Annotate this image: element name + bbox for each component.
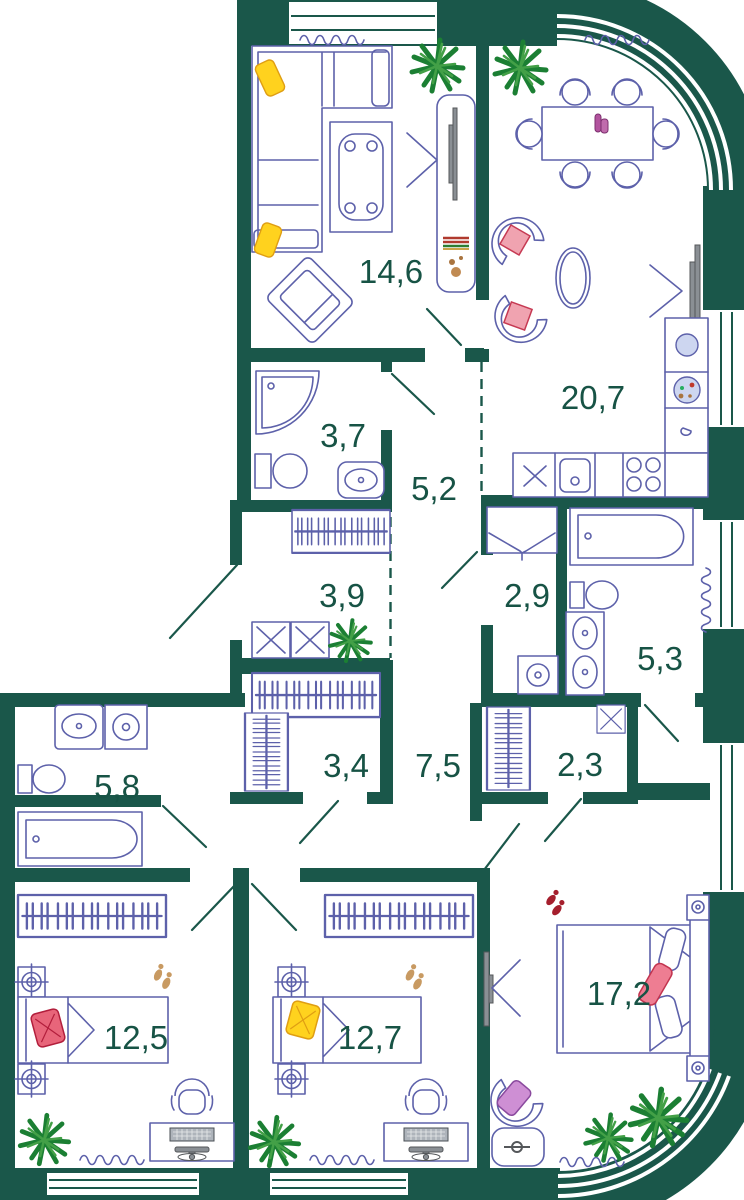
plant — [20, 1115, 68, 1163]
room-label-walkin: 3,4 — [323, 747, 369, 784]
room-label-living: 14,6 — [359, 253, 423, 290]
pillow — [500, 225, 530, 255]
armchair — [265, 255, 354, 344]
pouf — [492, 1128, 544, 1166]
door-laundry — [442, 552, 477, 588]
plant — [330, 620, 371, 661]
slippers — [402, 963, 429, 991]
plant — [412, 40, 463, 91]
washing-machine — [518, 656, 558, 694]
nightstand — [15, 964, 48, 1000]
room-label-bathroom: 5,3 — [637, 640, 683, 677]
slippers — [542, 889, 570, 917]
bathtub — [570, 508, 693, 565]
nightstand — [687, 1056, 709, 1081]
tv-cabinet — [437, 95, 475, 292]
room-label-corridor: 7,5 — [415, 747, 461, 784]
nightstand — [275, 964, 308, 1000]
living-room-furniture — [252, 36, 475, 345]
storage-box — [597, 705, 625, 733]
door-entrance — [170, 565, 237, 638]
wardrobe-rack — [487, 707, 530, 790]
slippers — [151, 963, 177, 990]
side-table — [556, 248, 590, 308]
bathtub — [18, 812, 142, 866]
wardrobe-rack — [245, 713, 288, 791]
desk-chair — [405, 1079, 446, 1114]
shoe-box — [252, 622, 290, 658]
wardrobe — [252, 673, 380, 717]
toilet — [570, 581, 618, 609]
rug-squiggle — [80, 1156, 144, 1165]
room-label-kitchen: 20,7 — [561, 379, 625, 416]
wardrobe — [18, 895, 166, 937]
tv-wall — [484, 952, 520, 1026]
room-label-bedroom1: 12,5 — [104, 1019, 168, 1056]
coffee-table — [330, 122, 392, 232]
room-label-laundry: 2,9 — [504, 577, 550, 614]
towel-rail — [702, 568, 711, 632]
door-bedroom-2 — [252, 884, 296, 930]
laundry-bin — [487, 507, 557, 560]
tv-arrow — [407, 133, 437, 187]
pillow — [504, 302, 532, 330]
toilet — [255, 454, 307, 488]
door-bedroom-1 — [192, 884, 236, 930]
door-bathroom — [645, 705, 678, 741]
wardrobe — [325, 895, 473, 937]
dining-table — [516, 79, 679, 188]
plant — [250, 1117, 298, 1165]
vanity-double-sink — [566, 612, 604, 695]
coat-rack — [292, 510, 390, 553]
sink — [338, 462, 384, 498]
room-label-bedroom2: 12,7 — [338, 1019, 402, 1056]
door-shower-room — [392, 374, 434, 414]
door-living-room — [427, 309, 461, 345]
desk — [384, 1123, 468, 1161]
plant — [586, 1115, 632, 1161]
sink — [55, 705, 103, 749]
shower — [256, 371, 319, 434]
room-label-hallway: 5,2 — [411, 470, 457, 507]
door-master-bedroom — [484, 824, 519, 870]
floor-plan: 14,6 20,7 3,7 5,2 3,9 2,9 5,3 7,5 3,4 2,… — [0, 0, 744, 1200]
rug-squiggle — [310, 1156, 374, 1165]
toilet — [18, 765, 65, 793]
desk-chair — [171, 1079, 212, 1114]
nightstand — [275, 1061, 308, 1097]
door-walk-in-closet — [300, 801, 338, 843]
room-label-entry: 3,9 — [319, 577, 365, 614]
plant — [495, 42, 546, 93]
washing-machine — [105, 705, 147, 749]
floor-plan-drawing: 14,6 20,7 3,7 5,2 3,9 2,9 5,3 7,5 3,4 2,… — [0, 0, 744, 1200]
nightstand — [687, 895, 709, 920]
room-label-shower: 3,7 — [320, 417, 366, 454]
room-label-master: 17,2 — [587, 975, 651, 1012]
room-label-masterbath: 5,8 — [94, 768, 140, 805]
shoe-box — [291, 622, 329, 658]
kitchen-furniture — [482, 36, 708, 498]
door-closet — [545, 799, 581, 841]
door-master-bathroom — [163, 806, 206, 847]
room-label-closet: 2,3 — [557, 746, 603, 783]
nightstand — [15, 1061, 48, 1097]
desk — [150, 1123, 234, 1161]
